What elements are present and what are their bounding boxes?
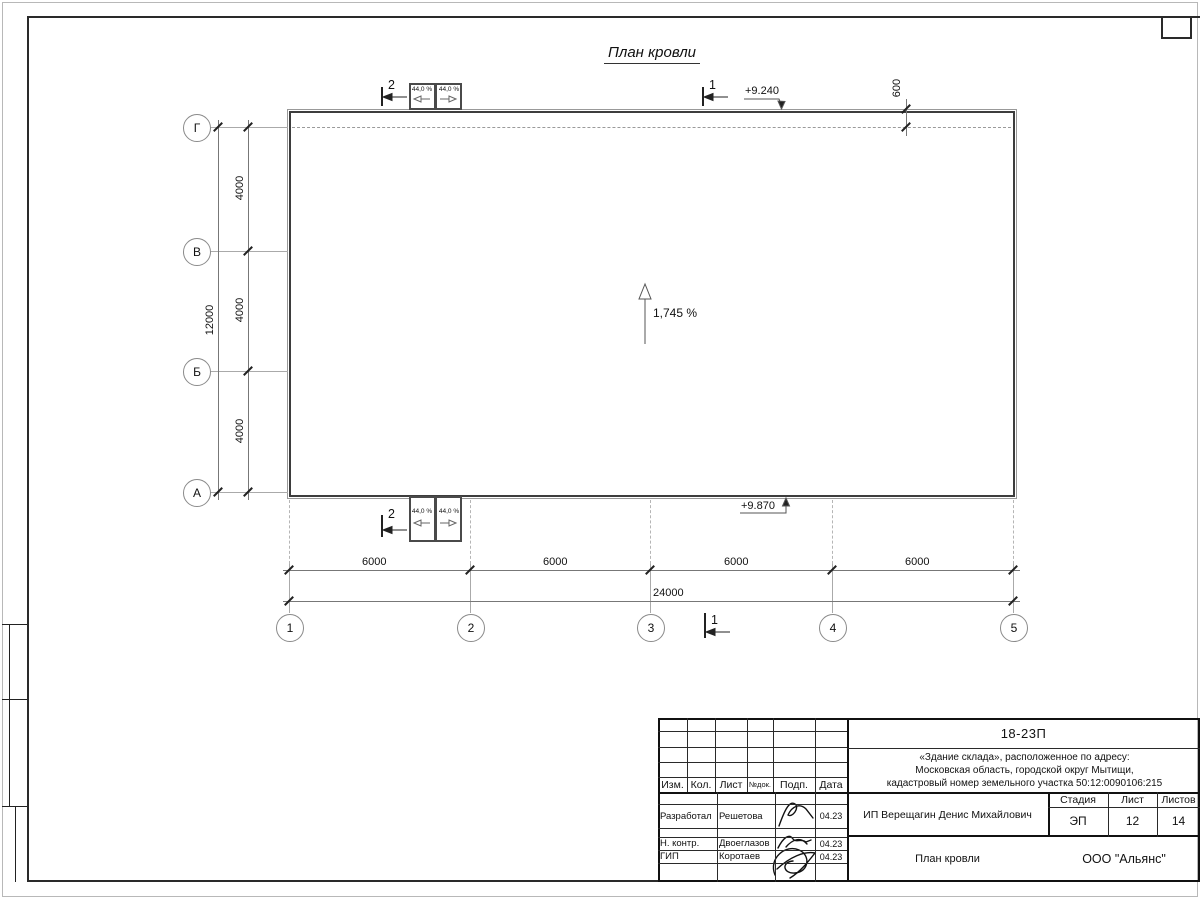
tb-org: ООО "Альянс" <box>1050 837 1198 880</box>
roof-outline <box>287 109 1017 499</box>
slope-label-local: 44,0 % <box>410 86 434 93</box>
axis-line-col <box>832 564 833 613</box>
dim-label-6000: 6000 <box>543 556 567 568</box>
axis-line-col <box>650 500 651 564</box>
margin-table-line <box>2 624 27 625</box>
title-block: Изм. Кол. Лист №док. Подп. Дата Разработ… <box>658 718 1200 882</box>
axis-line-col <box>650 564 651 613</box>
tb-name: Коротаев <box>719 850 774 863</box>
tb-stage-value: ЭП <box>1048 807 1108 835</box>
tb-col-dok: №док. <box>747 777 773 792</box>
tb-line <box>658 792 847 794</box>
axis-bubble-col: 2 <box>457 614 485 642</box>
dim-label-6000: 6000 <box>362 556 386 568</box>
roof-hatch <box>409 496 436 542</box>
axis-label: 2 <box>468 621 475 635</box>
dim-line-24000 <box>283 601 1020 602</box>
tb-object-line: кадастровый номер земельного участка 50:… <box>887 777 1163 790</box>
corner-stamp-box <box>1161 18 1192 39</box>
tb-line <box>658 762 847 763</box>
tb-role: ГИП <box>660 850 716 863</box>
tb-line <box>658 828 847 829</box>
tb-col-data: Дата <box>815 777 847 792</box>
tb-role: Н. контр. <box>660 837 716 850</box>
elevation-bottom: +9.870 <box>741 500 775 512</box>
dim-line-4000 <box>248 120 249 500</box>
tb-sheet-value: 12 <box>1108 807 1157 835</box>
slope-label-main: 1,745 % <box>653 306 697 320</box>
cut-number: 1 <box>711 613 718 627</box>
tb-name: Решетова <box>719 804 774 828</box>
elevation-top: +9.240 <box>745 85 779 97</box>
tb-col-podp: Подп. <box>773 777 815 792</box>
axis-label: 1 <box>287 621 294 635</box>
tb-line <box>658 731 847 732</box>
dim-label-24000: 24000 <box>653 587 684 599</box>
axis-bubble-col: 5 <box>1000 614 1028 642</box>
dim-label-4000: 4000 <box>234 414 246 448</box>
axis-label: 3 <box>648 621 655 635</box>
tb-col-kol: Кол. <box>687 777 715 792</box>
cut-number: 2 <box>388 78 395 92</box>
slope-label-local: 44,0 % <box>437 86 461 93</box>
tb-object-line: Московская область, городской округ Мыти… <box>915 764 1133 777</box>
margin-table-line <box>9 624 10 806</box>
axis-bubble-col: 4 <box>819 614 847 642</box>
tb-line <box>658 863 847 864</box>
tb-stage-label: Стадия <box>1048 792 1108 807</box>
axis-bubble-row: А <box>183 479 211 507</box>
axis-label: А <box>193 486 201 500</box>
tb-date: 04.23 <box>816 804 846 828</box>
tb-doc-title: План кровли <box>847 837 1048 880</box>
dim-line-6000 <box>283 570 1020 571</box>
dim-line-600 <box>906 99 907 136</box>
axis-label: 5 <box>1011 621 1018 635</box>
tb-sheet-label: Лист <box>1108 792 1157 807</box>
tb-col-list: Лист <box>715 777 747 792</box>
axis-bubble-row: Б <box>183 358 211 386</box>
dim-label-4000: 4000 <box>234 171 246 205</box>
axis-label: 4 <box>830 621 837 635</box>
axis-line-col <box>289 564 290 613</box>
roof-hatch <box>435 496 462 542</box>
tb-border <box>658 880 1200 882</box>
axis-line-col <box>1013 500 1014 564</box>
tb-object-line: «Здание склада», расположенное по адресу… <box>919 751 1129 764</box>
dim-label-6000: 6000 <box>724 556 748 568</box>
dim-label-12000: 12000 <box>204 298 216 342</box>
tb-line <box>658 747 847 748</box>
tb-client: ИП Верещагин Денис Михайлович <box>847 794 1048 835</box>
axis-bubble-row: Г <box>183 114 211 142</box>
axis-label: Г <box>194 121 201 135</box>
tb-sheets-value: 14 <box>1157 807 1200 835</box>
sheet-title: План кровли <box>604 44 700 64</box>
margin-table-line <box>2 699 27 700</box>
dim-label-4000: 4000 <box>234 293 246 327</box>
tb-doc-code: 18-23П <box>847 718 1200 748</box>
cut-number: 1 <box>709 78 716 92</box>
axis-line-col <box>832 500 833 564</box>
cut-number: 2 <box>388 507 395 521</box>
axis-line-col <box>470 500 471 564</box>
drawing-sheet: План кровли 4000 4000 4000 12000 6000 60… <box>0 0 1200 900</box>
roof-outline-inner <box>289 111 1015 497</box>
dim-label-6000: 6000 <box>905 556 929 568</box>
slope-label-local: 44,0 % <box>410 508 434 515</box>
axis-label: Б <box>193 365 201 379</box>
axis-label: В <box>193 245 201 259</box>
margin-table-line <box>15 806 16 882</box>
tb-col-izm: Изм. <box>658 777 687 792</box>
axis-line-col <box>289 500 290 564</box>
dim-label-600: 600 <box>891 75 903 101</box>
tb-role: Разработал <box>660 804 716 828</box>
tb-date: 04.23 <box>816 837 846 850</box>
axis-bubble-row: В <box>183 238 211 266</box>
tb-date: 04.23 <box>816 850 846 863</box>
slope-label-local: 44,0 % <box>437 508 461 515</box>
dim-line-12000 <box>218 120 219 500</box>
tb-name: Двоеглазов <box>719 837 774 850</box>
axis-line-col <box>470 564 471 613</box>
axis-bubble-col: 3 <box>637 614 665 642</box>
axis-bubble-col: 1 <box>276 614 304 642</box>
axis-line-col <box>1013 564 1014 613</box>
tb-object: «Здание склада», расположенное по адресу… <box>853 749 1196 792</box>
tb-sheets-label: Листов <box>1157 792 1200 807</box>
